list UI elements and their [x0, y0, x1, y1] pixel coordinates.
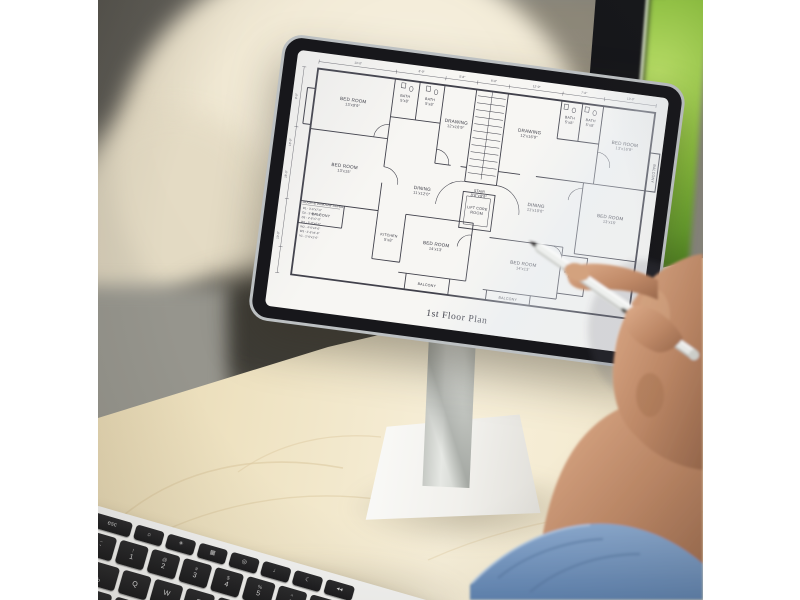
- room-label: KITCHEN5'x8': [563, 270, 581, 281]
- dimension-label: 15'-0": [284, 170, 289, 178]
- side-dimension-labels: 9'-9"16'-9"15'-0"13'-0": [276, 93, 299, 239]
- dimension-label: 9'-9": [294, 93, 299, 99]
- key-3[interactable]: #3: [178, 558, 212, 589]
- dimension-label: 13'-0": [627, 97, 635, 102]
- photo-area: 13'-0"8'-0"5'-6"8'-6"12'-0"7'-0"13'-0" 9…: [98, 0, 703, 600]
- room-label: BALCONY: [417, 282, 436, 288]
- tablet-screen[interactable]: 13'-0"8'-0"5'-6"8'-6"12'-0"7'-0"13'-0" 9…: [265, 50, 669, 355]
- room-label: DINING11'x10'0": [527, 202, 546, 214]
- plan-caption: 1st Floor Plan: [426, 309, 488, 327]
- dimension-label: 16'-9": [288, 138, 293, 146]
- room-label: KITCHEN5'x8': [380, 232, 398, 243]
- dimension-label: 12'-0": [533, 84, 541, 89]
- room-label: LIFT COREROOM: [466, 205, 488, 217]
- dimension-label: 5'-6": [459, 74, 465, 79]
- key-5[interactable]: %5: [241, 576, 275, 600]
- room-label: BATH5'x8': [424, 97, 435, 107]
- key-4[interactable]: $4: [210, 567, 244, 598]
- schedule-items: D1 - 3'-6"x7'-0"D2 - 3'-0"x7'-0"D3 - 2'-…: [299, 206, 323, 240]
- key-backtick[interactable]: ~`: [98, 530, 117, 561]
- room-label: BED ROOM14'x13': [422, 240, 450, 253]
- dimension-label: 8'-0": [418, 69, 424, 74]
- room-label: BED ROOM13'x9'9": [339, 96, 367, 109]
- room-label: DRAWING12'x16'9": [517, 127, 542, 140]
- room-label: BALCONY: [650, 164, 656, 183]
- room-label: DRAWING12'x16'9": [444, 118, 469, 131]
- room-label: STAIR8'6"x9'9": [470, 188, 488, 199]
- key-rewind[interactable]: ◂◂: [323, 579, 355, 600]
- room-label: BATH5'x8': [585, 118, 596, 128]
- key-2[interactable]: @2: [146, 549, 180, 580]
- key-w[interactable]: W: [149, 579, 183, 600]
- dimension-label: 8'-6": [491, 79, 497, 84]
- tablet: 13'-0"8'-0"5'-6"8'-6"12'-0"7'-0"13'-0" 9…: [247, 33, 687, 372]
- room-label: BED ROOM13'x16'9": [611, 140, 639, 153]
- dimension-label: 13'-0": [276, 231, 281, 239]
- room-label: BATH5'x8': [564, 115, 575, 125]
- floor-plan-drawing: 13'-0"8'-0"5'-6"8'-6"12'-0"7'-0"13'-0" 9…: [265, 50, 669, 355]
- room-label: DINING11'x12'0": [413, 185, 432, 197]
- room-label: BATH5'x8': [399, 94, 410, 104]
- dimension-label: 7'-0": [581, 91, 587, 96]
- room-label: BED ROOM14'x13': [509, 260, 537, 273]
- key-q[interactable]: Q: [117, 570, 151, 600]
- photo-canvas: 13'-0"8'-0"5'-6"8'-6"12'-0"7'-0"13'-0" 9…: [0, 0, 800, 600]
- dimension-label: 13'-0": [354, 61, 362, 66]
- room-label: BED ROOM13'x15': [330, 162, 358, 175]
- key-1[interactable]: !1: [115, 540, 149, 571]
- room-label: BED ROOM13'x15': [596, 213, 624, 226]
